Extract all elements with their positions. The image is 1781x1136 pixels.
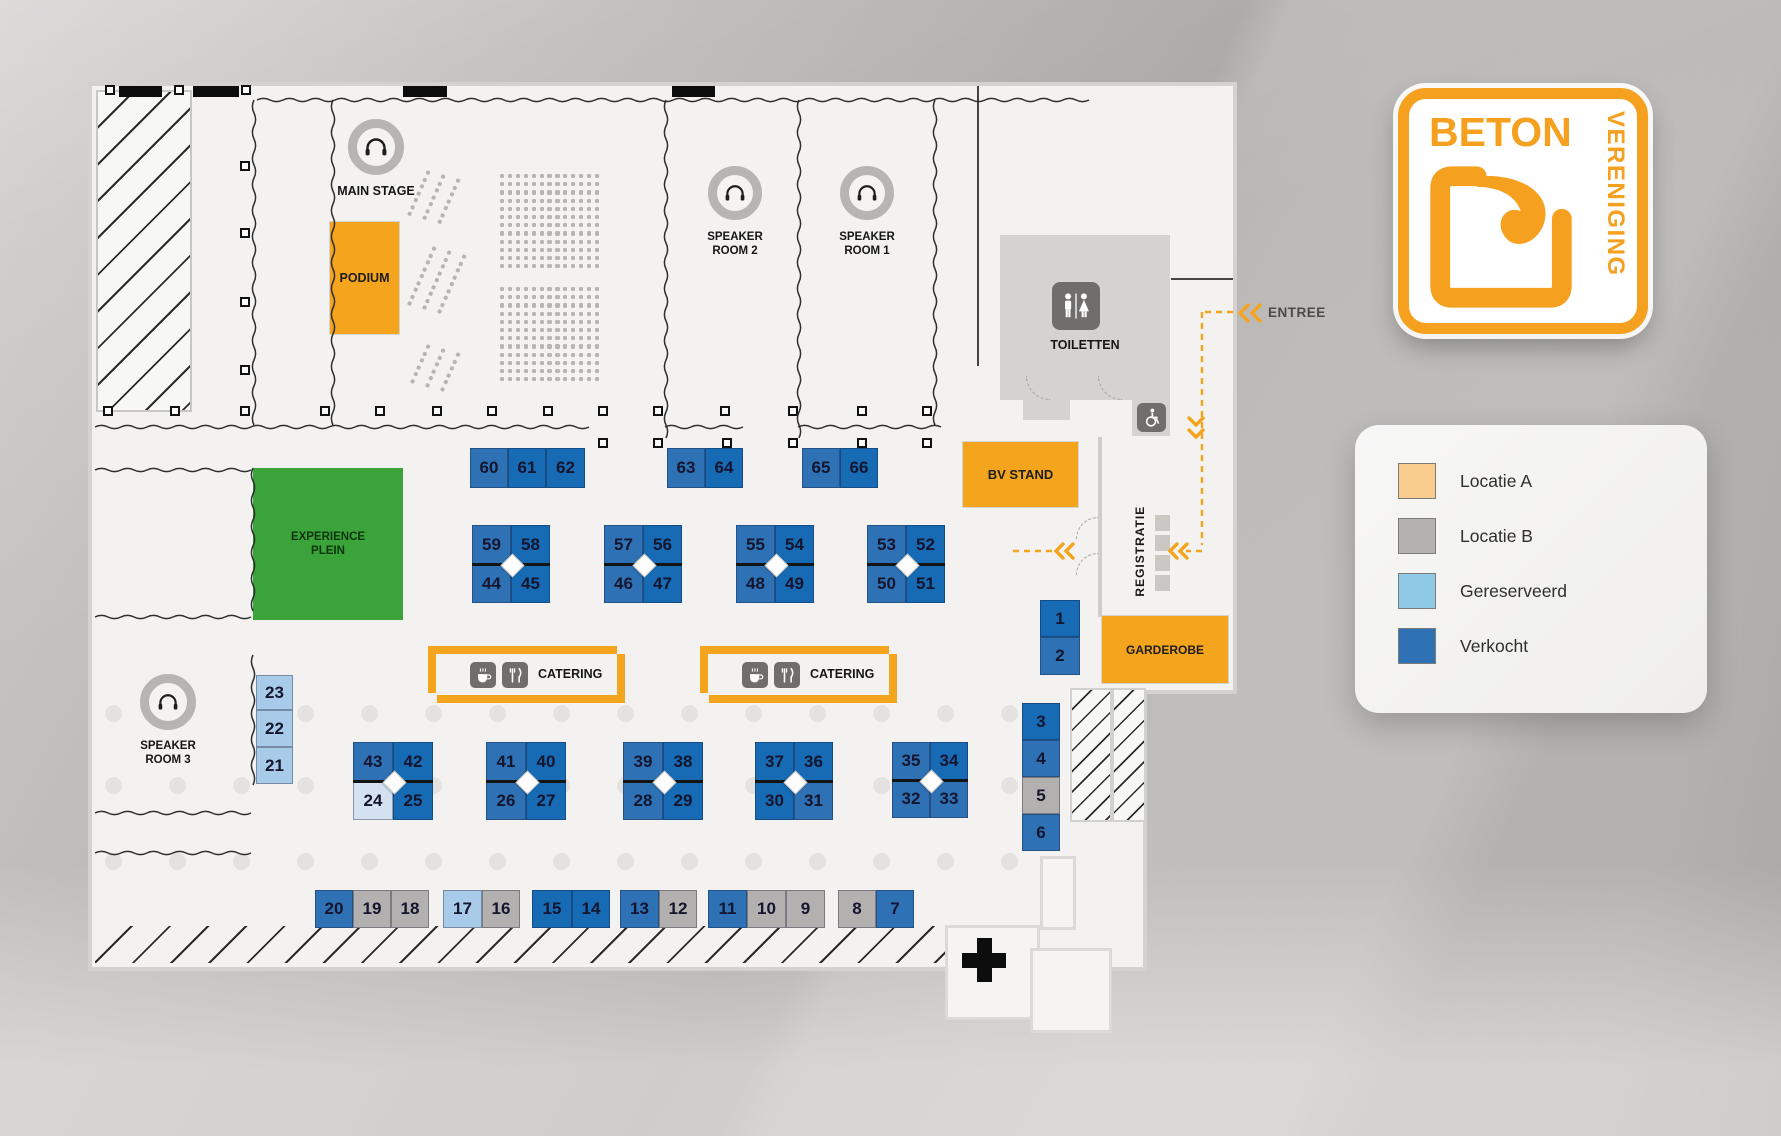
seat-dot (446, 250, 452, 256)
speaker-room-2-circle (708, 166, 762, 220)
booth-61[interactable]: 61 (508, 448, 546, 488)
seat-dot (516, 320, 520, 324)
seat-dot (500, 303, 504, 307)
seat-dot (587, 312, 591, 316)
pillar-marker (174, 85, 184, 95)
booth-37[interactable]: 37 (755, 742, 794, 781)
seat-dot (579, 295, 583, 299)
seat-dot (540, 312, 544, 316)
seat-dot (524, 303, 528, 307)
column-dot (297, 705, 314, 722)
seat-dot (508, 199, 512, 203)
seat-dot (595, 295, 599, 299)
seat-dot (425, 260, 431, 266)
pillar-marker (170, 406, 180, 416)
booth-9[interactable]: 9 (786, 890, 825, 928)
speaker-room-3-text: SPEAKER ROOM 3 (140, 740, 196, 766)
seat-dot (563, 336, 567, 340)
main-stage-label: MAIN STAGE (316, 184, 436, 199)
seat-dot (508, 336, 512, 340)
seat-dot (540, 287, 544, 291)
booth-41[interactable]: 41 (486, 742, 526, 781)
booth-19[interactable]: 19 (353, 890, 391, 928)
booth-55[interactable]: 55 (736, 525, 775, 564)
seat-dot (508, 377, 512, 381)
annex-room-small (1040, 856, 1076, 930)
booth-53[interactable]: 53 (867, 525, 906, 564)
seat-column (406, 246, 439, 310)
booth-18[interactable]: 18 (391, 890, 429, 928)
booth-57[interactable]: 57 (604, 525, 643, 564)
seat-dot (422, 267, 428, 273)
pillar-marker (788, 438, 798, 448)
entree-text: ENTREE (1268, 305, 1326, 320)
main-stage-text: MAIN STAGE (337, 184, 415, 198)
seat-dot (587, 353, 591, 357)
column-dot (1001, 705, 1018, 722)
seat-dot (508, 231, 512, 235)
catering-bracket (437, 695, 625, 703)
coffee-cup-glyph (473, 665, 493, 685)
seat-dot (571, 287, 575, 291)
pillar-marker (653, 438, 663, 448)
seat-dot (579, 215, 583, 219)
bv-stand-label: BV STAND (988, 467, 1053, 482)
catering-stand-1: CATERING (428, 646, 625, 703)
wall-bar (403, 86, 447, 97)
seat-dot (455, 178, 461, 184)
seat-dot (563, 174, 567, 178)
seat-dot (547, 312, 551, 316)
booth-65[interactable]: 65 (802, 448, 840, 488)
seat-dot (428, 253, 434, 259)
speaker-room-3-label: SPEAKER ROOM 3 (118, 740, 218, 768)
headphones-icon (724, 184, 746, 202)
seat-dot (500, 336, 504, 340)
pillar-marker (105, 85, 115, 95)
seat-dot (443, 257, 449, 263)
seat-dot (579, 328, 583, 332)
seat-dot (579, 312, 583, 316)
seat-dot (571, 295, 575, 299)
seat-dot (579, 199, 583, 203)
seat-dot (516, 231, 520, 235)
seat-dot (532, 174, 536, 178)
booth-10[interactable]: 10 (747, 890, 786, 928)
column-dot (425, 705, 442, 722)
seat-dot (532, 207, 536, 211)
speaker-room-1-text: SPEAKER ROOM 1 (839, 231, 895, 257)
seat-dot (540, 264, 544, 268)
cutlery-icon (774, 662, 800, 688)
seat-dot (547, 231, 551, 235)
seat-dot (555, 215, 559, 219)
booth-60[interactable]: 60 (470, 448, 508, 488)
seat-dot (595, 328, 599, 332)
seat-dot (500, 223, 504, 227)
seat-dot (524, 369, 528, 373)
registratie-text: REGISTRATIE (1133, 506, 1147, 597)
seat-dot (540, 190, 544, 194)
seat-dot (508, 264, 512, 268)
seat-dot (547, 240, 551, 244)
seat-dot (443, 205, 449, 211)
seat-dot (500, 207, 504, 211)
booth-21[interactable]: 21 (256, 747, 293, 784)
seat-dot (563, 320, 567, 324)
seat-dot (532, 344, 536, 348)
seat-dot (524, 336, 528, 340)
seat-dot (595, 336, 599, 340)
seat-dot (547, 303, 551, 307)
booth-22[interactable]: 22 (256, 710, 293, 747)
seat-dot (595, 231, 599, 235)
booth-11[interactable]: 11 (708, 890, 747, 928)
pillar-marker (103, 406, 113, 416)
seat-dot (540, 182, 544, 186)
column-dot (617, 853, 634, 870)
seat-dot (540, 344, 544, 348)
seat-dot (587, 182, 591, 186)
booth-35[interactable]: 35 (892, 742, 930, 780)
seat-dot (587, 336, 591, 340)
booth-15[interactable]: 15 (532, 890, 572, 928)
seat-dot (508, 312, 512, 316)
seat-dot (516, 328, 520, 332)
booth-64[interactable]: 64 (705, 448, 743, 488)
speaker-room-1-circle (840, 166, 894, 220)
seat-dot (571, 248, 575, 252)
seat-dot (571, 223, 575, 227)
seat-dot (413, 287, 419, 293)
coffee-cup-glyph (745, 665, 765, 685)
seat-dot (416, 365, 422, 371)
booth-12[interactable]: 12 (659, 890, 697, 928)
seat-dot (440, 264, 446, 270)
seat-dot (571, 215, 575, 219)
seat-dot (587, 215, 591, 219)
seat-dot (563, 207, 567, 211)
seat-dot (587, 256, 591, 260)
seat-dot (563, 377, 567, 381)
seat-dot (563, 240, 567, 244)
seat-dot (508, 240, 512, 244)
booth-23[interactable]: 23 (256, 675, 293, 710)
registratie-desk (1155, 535, 1170, 551)
seat-dot (563, 182, 567, 186)
booth-59[interactable]: 59 (472, 525, 511, 564)
seat-dot (547, 295, 551, 299)
seat-dot (571, 361, 575, 365)
seat-dot (500, 174, 504, 178)
seat-dot (540, 256, 544, 260)
toiletten-label: TOILETTEN (1025, 338, 1145, 353)
seat-dot (579, 248, 583, 252)
seat-dot (571, 344, 575, 348)
seat-dot (547, 361, 551, 365)
seat-dot (500, 287, 504, 291)
fork-knife-glyph (777, 665, 797, 685)
seat-dot (532, 336, 536, 340)
seat-dot (555, 264, 559, 268)
seat-dot (443, 295, 449, 301)
booth-2[interactable]: 2 (1040, 637, 1080, 675)
seat-dot (595, 256, 599, 260)
seat-dot (500, 199, 504, 203)
seat-dot (563, 369, 567, 373)
seat-dot (547, 328, 551, 332)
seat-dot (437, 355, 443, 361)
seat-dot (555, 174, 559, 178)
seat-dot (595, 223, 599, 227)
seat-dot (540, 361, 544, 365)
experience-plein-label: EXPERIENCE PLEIN (291, 530, 365, 559)
pillar-marker (722, 438, 732, 448)
seat-dot (455, 352, 461, 358)
seat-dot (547, 256, 551, 260)
seat-dot (440, 302, 446, 308)
booth-14[interactable]: 14 (572, 890, 610, 928)
seat-dot (508, 248, 512, 252)
booth-62[interactable]: 62 (546, 448, 585, 488)
first-aid-cross (977, 938, 992, 982)
seat-dot (547, 377, 551, 381)
booth-66[interactable]: 66 (840, 448, 878, 488)
booth-1[interactable]: 1 (1040, 600, 1080, 637)
seat-dot (500, 256, 504, 260)
seat-dot (532, 377, 536, 381)
seat-dot (587, 328, 591, 332)
seat-dot (425, 298, 431, 304)
seat-dot (500, 231, 504, 235)
seat-dot (500, 240, 504, 244)
wall-bar (119, 86, 162, 97)
seat-dot (563, 353, 567, 357)
seat-dot (595, 287, 599, 291)
seat-dot (595, 344, 599, 348)
seat-dot (428, 375, 434, 381)
seat-dot (437, 271, 443, 277)
booth-6[interactable]: 6 (1022, 814, 1060, 851)
podium-label: PODIUM (340, 271, 390, 285)
seat-dot (555, 256, 559, 260)
seat-dot (547, 320, 551, 324)
wheelchair-icon (1137, 403, 1166, 432)
seat-dot (532, 312, 536, 316)
column-dot (873, 777, 890, 794)
seat-dot (446, 288, 452, 294)
registratie-desk (1155, 555, 1170, 571)
seat-dot (434, 362, 440, 368)
seat-dot (555, 199, 559, 203)
seat-dot (524, 248, 528, 252)
seat-dot (540, 320, 544, 324)
seat-dot (571, 240, 575, 244)
pillar-marker (240, 228, 250, 238)
bv-monogram-icon (1425, 161, 1577, 313)
seat-dot (437, 181, 443, 187)
main-stage-circle (348, 119, 404, 175)
booth-7[interactable]: 7 (876, 890, 914, 928)
seat-dot (555, 190, 559, 194)
seat-dot (524, 264, 528, 268)
seat-dot (563, 256, 567, 260)
seat-dot (440, 174, 446, 180)
booth-5[interactable]: 5 (1022, 777, 1060, 814)
seat-dot (532, 264, 536, 268)
catering-bracket (428, 646, 436, 693)
seat-dot (437, 309, 443, 315)
booth-8[interactable]: 8 (838, 890, 876, 928)
pillar-marker (598, 406, 608, 416)
seat-dot (547, 353, 551, 357)
seat-dot (571, 256, 575, 260)
seat-dot (555, 369, 559, 373)
seat-dot (563, 248, 567, 252)
seat-dot (532, 182, 536, 186)
seat-dot (455, 268, 461, 274)
booth-4[interactable]: 4 (1022, 740, 1060, 777)
booth-39[interactable]: 39 (623, 742, 663, 781)
seat-dot (571, 303, 575, 307)
seat-dot (524, 223, 528, 227)
seat-dot (571, 312, 575, 316)
seat-dot (571, 231, 575, 235)
booth-43[interactable]: 43 (353, 742, 393, 781)
seat-dot (500, 361, 504, 365)
seat-dot (571, 369, 575, 373)
pillar-marker (240, 406, 250, 416)
seat-dot (571, 182, 575, 186)
seat-dot (540, 336, 544, 340)
pillar-marker (857, 438, 867, 448)
seat-dot (547, 264, 551, 268)
seat-dot (524, 328, 528, 332)
coffee-icon (742, 662, 768, 688)
legend-item-verkocht: Verkocht (1398, 627, 1528, 665)
seat-dot (555, 231, 559, 235)
seat-dot (547, 199, 551, 203)
seat-dot (407, 211, 413, 217)
seat-dot (579, 353, 583, 357)
booth-3[interactable]: 3 (1022, 703, 1060, 740)
column-dot (681, 853, 698, 870)
seat-dot (540, 303, 544, 307)
legend-swatch (1398, 518, 1436, 554)
toiletten-text: TOILETTEN (1050, 338, 1119, 352)
booth-16[interactable]: 16 (482, 890, 520, 928)
seat-dot (516, 377, 520, 381)
seat-dot (571, 174, 575, 178)
seat-dot (508, 287, 512, 291)
column-dot (233, 777, 250, 794)
seat-dot (563, 199, 567, 203)
seat-dot (563, 223, 567, 227)
seat-dot (540, 174, 544, 178)
seat-dot (508, 353, 512, 357)
seat-dot (413, 371, 419, 377)
seat-dot (547, 287, 551, 291)
catering-bracket (709, 695, 897, 703)
seat-dot (579, 336, 583, 340)
seat-dot (431, 369, 437, 375)
column-dot (361, 705, 378, 722)
seat-dot (555, 320, 559, 324)
seat-dot (440, 386, 446, 392)
seat-dot (587, 207, 591, 211)
seat-dot (547, 190, 551, 194)
seat-dot (595, 303, 599, 307)
seat-dot (516, 207, 520, 211)
seat-dot (579, 303, 583, 307)
seat-dot (516, 344, 520, 348)
seat-dot (595, 207, 599, 211)
column-dot (1001, 853, 1018, 870)
seat-dot (516, 223, 520, 227)
seat-dot (524, 320, 528, 324)
column-dot (617, 705, 634, 722)
seat-dot (555, 377, 559, 381)
booth-20[interactable]: 20 (315, 890, 353, 928)
seat-dot (587, 231, 591, 235)
legend-swatch (1398, 573, 1436, 609)
seat-dot (579, 361, 583, 365)
seat-dot (516, 199, 520, 203)
seat-dot (563, 344, 567, 348)
booth-13[interactable]: 13 (620, 890, 659, 928)
seat-dot (587, 248, 591, 252)
column-dot (937, 705, 954, 722)
seat-dot (540, 248, 544, 252)
seat-dot (587, 287, 591, 291)
seat-dot (500, 344, 504, 348)
pillar-marker (788, 406, 798, 416)
column-dot (297, 777, 314, 794)
booth-63[interactable]: 63 (667, 448, 705, 488)
seat-dot (555, 207, 559, 211)
seat-dot (540, 199, 544, 203)
column-dot (489, 853, 506, 870)
seat-dot (440, 348, 446, 354)
seat-dot (547, 369, 551, 373)
seat-dot (540, 207, 544, 211)
column-dot (809, 705, 826, 722)
wheelchair-glyph (1141, 407, 1162, 428)
seat-dot (532, 369, 536, 373)
seat-dot (524, 231, 528, 235)
seat-dot (555, 295, 559, 299)
seat-dot (500, 215, 504, 219)
legend-item-locatie-a: Locatie A (1398, 462, 1532, 500)
booth-17[interactable]: 17 (443, 890, 482, 928)
registratie-label: REGISTRATIE (1133, 496, 1147, 606)
seat-dot (563, 303, 567, 307)
pillar-marker (375, 406, 385, 416)
logo-word-beton: BETON (1429, 109, 1572, 156)
seat-dot (524, 174, 528, 178)
column-dot (809, 853, 826, 870)
catering-text: CATERING (810, 667, 874, 681)
seat-dot (516, 361, 520, 365)
seat-dot (595, 182, 599, 186)
seat-dot (579, 369, 583, 373)
seat-column (436, 254, 469, 318)
seat-dot (516, 264, 520, 268)
seat-dot (540, 328, 544, 332)
pillar-marker (720, 406, 730, 416)
seat-dot (524, 377, 528, 381)
seat-dot (571, 328, 575, 332)
